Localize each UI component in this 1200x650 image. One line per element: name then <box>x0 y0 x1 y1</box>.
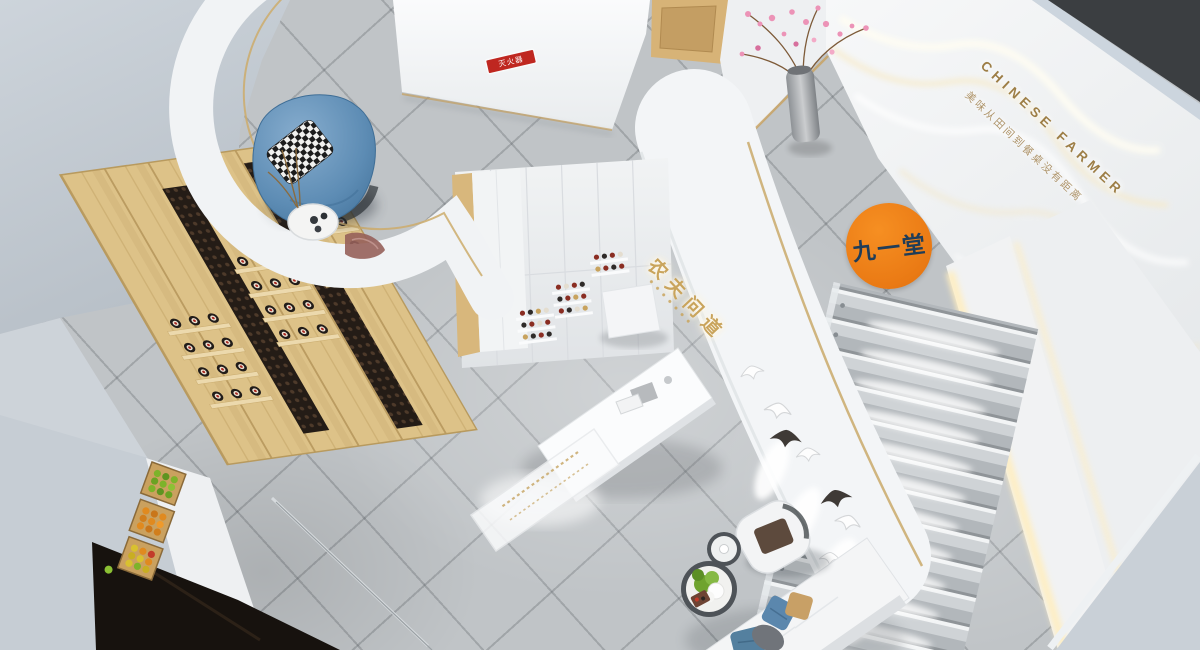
service-zone <box>92 458 432 650</box>
marble-decor <box>345 233 385 259</box>
reception-counter <box>393 0 650 130</box>
scene-svg <box>0 0 1200 650</box>
store-render: CHINESE FARMER 美味从田间到餐桌没有距离 农夫问道 九一堂 灭火器 <box>0 0 1200 650</box>
white-cup <box>720 545 729 554</box>
coffee-tables <box>681 532 741 617</box>
